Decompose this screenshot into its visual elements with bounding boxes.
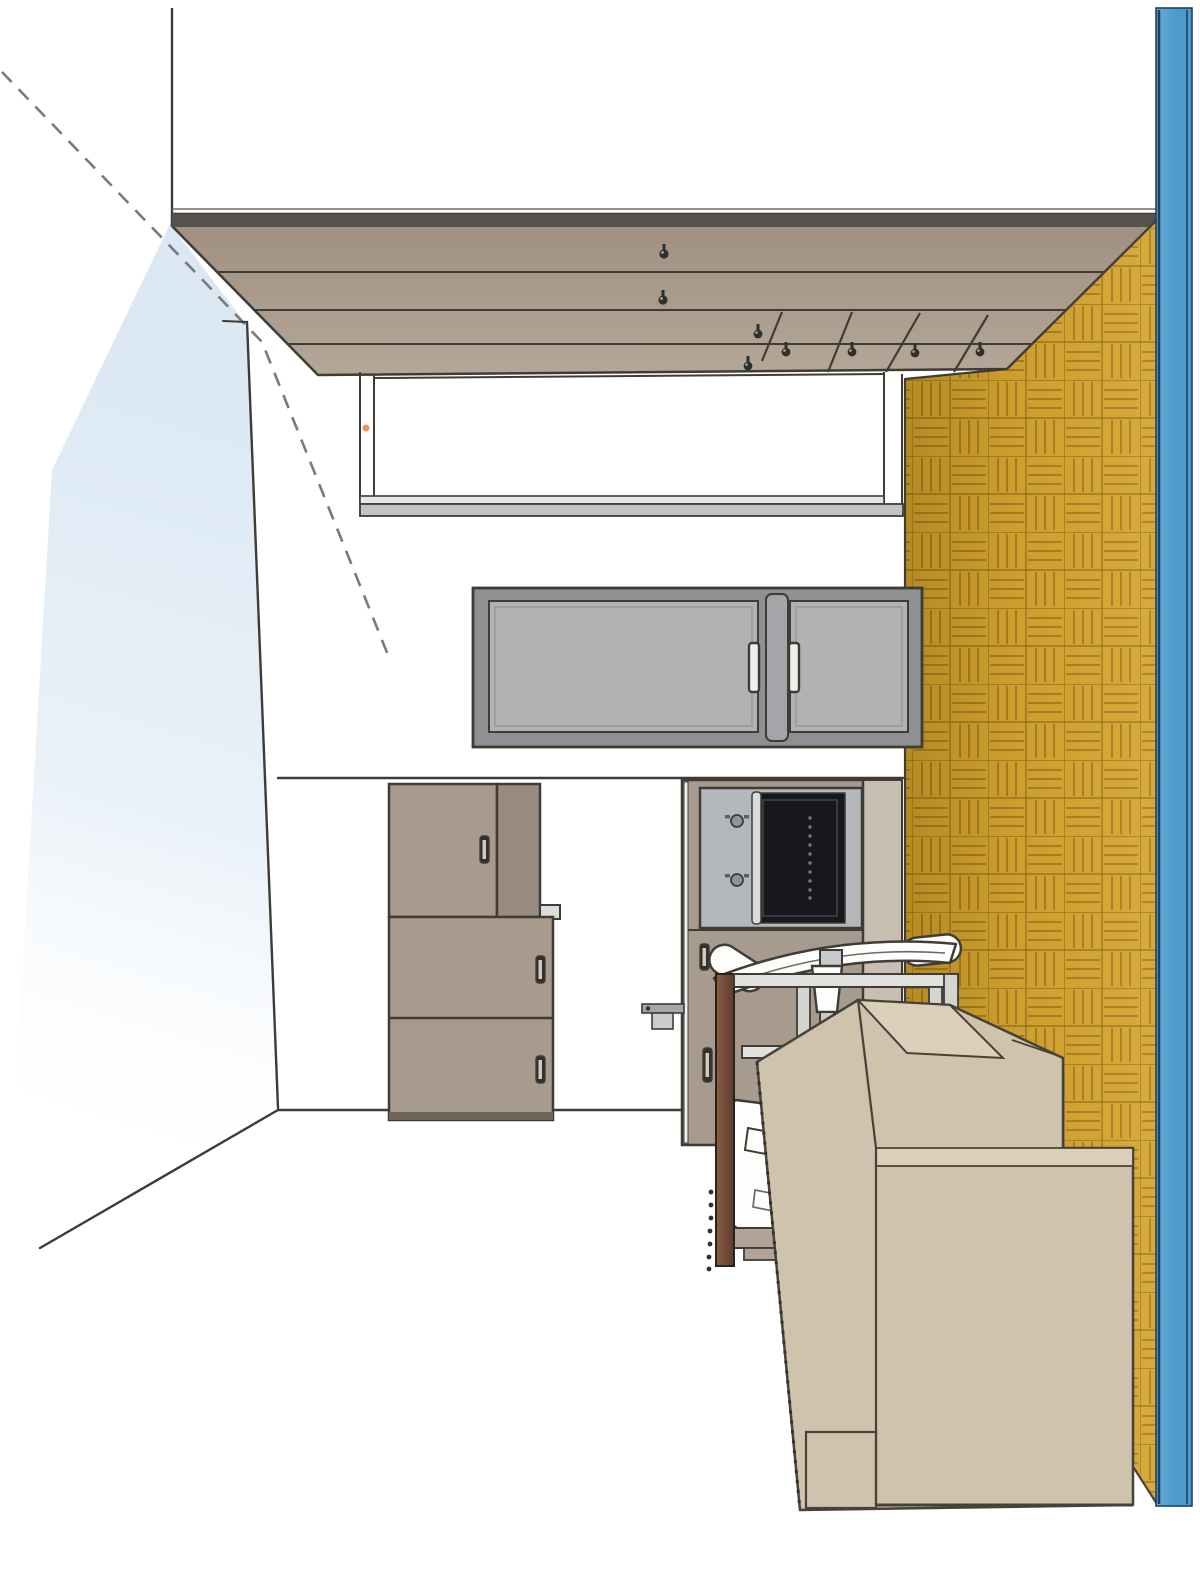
built-in-oven [700, 788, 862, 928]
section-strip [1156, 8, 1192, 1506]
ceiling-dark-band [172, 214, 1157, 227]
oven-handle-bar [752, 792, 761, 924]
wardrobe-handle-middle [536, 956, 545, 983]
wardrobe [389, 784, 560, 1120]
wardrobe-base-strip [389, 1112, 553, 1120]
front-box-top-strip [876, 1148, 1133, 1166]
wall-cabinet-divider [766, 594, 788, 741]
wardrobe-handle-top [480, 836, 489, 863]
orange-mark [363, 425, 370, 432]
oven-glass-door [755, 793, 845, 923]
suspended-frame [360, 372, 903, 516]
scanned-rendering-page [0, 0, 1200, 1569]
drawer-slot-lower [703, 1048, 712, 1082]
chair-backrest-post [812, 966, 842, 1012]
frame-sill-upper [360, 496, 884, 504]
wardrobe-handle-bottom [536, 1056, 545, 1083]
desk-side-panel [716, 974, 734, 1266]
door-handle-bracket [642, 1004, 684, 1029]
chair-caster-dots [707, 1190, 714, 1272]
wall-cabinet-right-door [790, 601, 908, 732]
wardrobe-top-side [497, 784, 540, 917]
left-wall-surface [16, 224, 278, 1246]
wall-cabinet-left-door [489, 601, 758, 732]
wall-cabinet-handle-right [789, 643, 799, 692]
corner-jog-line [223, 321, 247, 322]
ceiling [172, 8, 1157, 375]
wall-cabinet [473, 588, 922, 747]
wall-cabinet-handle-left [749, 643, 759, 692]
frame-sill-lower [360, 504, 903, 516]
desk-top-rail [734, 974, 958, 987]
drawer-slot-upper [700, 944, 709, 970]
oven-column-left-reveal [684, 782, 688, 1143]
interior-rendering [0, 0, 1200, 1569]
